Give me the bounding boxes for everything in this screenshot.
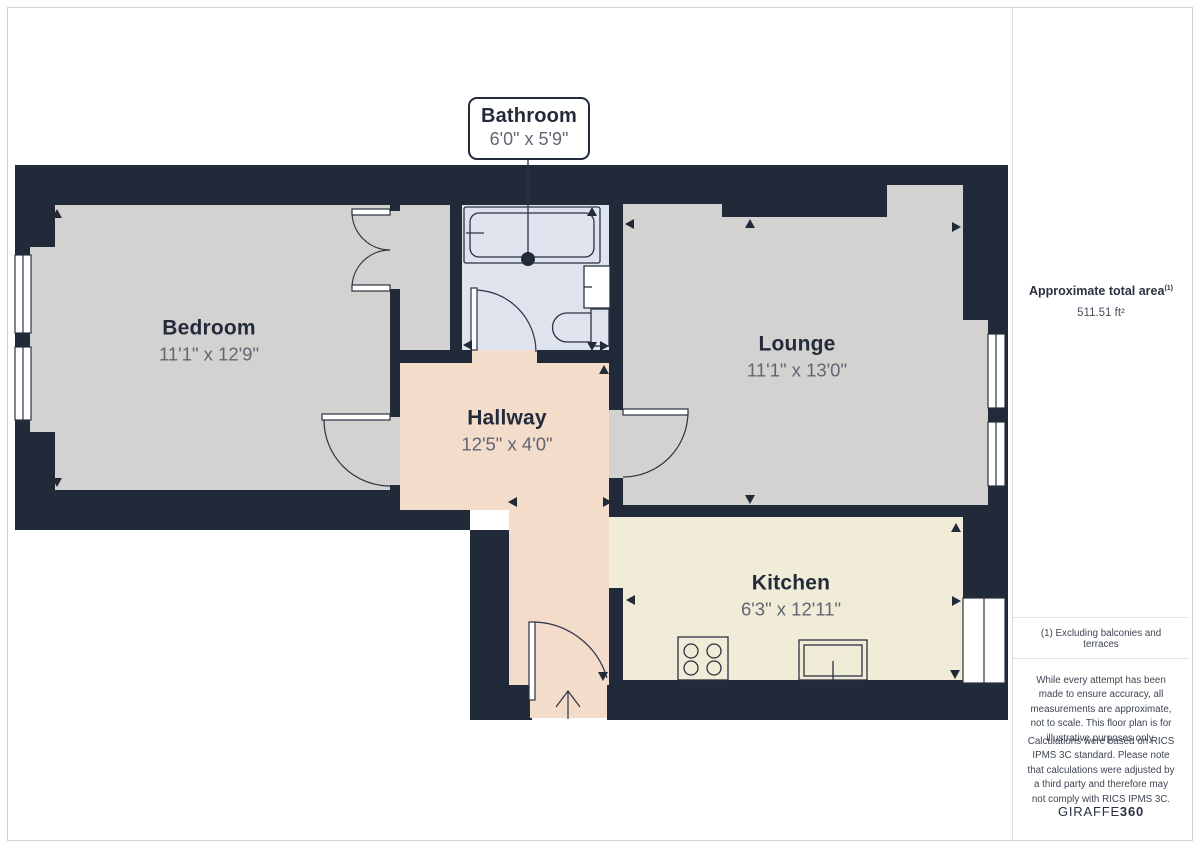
bathroom-dims: 6'0" x 5'9" xyxy=(470,129,588,150)
closet-door-leaf-top xyxy=(352,209,390,215)
closet-floor xyxy=(400,205,450,350)
kitchen-dims: 6'3" x 12'11" xyxy=(741,599,841,621)
area-footnote: (1) Excluding balconies and terraces xyxy=(1013,628,1189,650)
divider xyxy=(1013,658,1189,659)
footnote-marker: (1) xyxy=(1164,285,1173,292)
lounge-label: Lounge 11'1" x 13'0" xyxy=(747,333,847,382)
bedroom-door-leaf xyxy=(322,414,390,420)
bedroom-dims: 11'1" x 12'9" xyxy=(159,344,259,366)
disclaimer-rics: Calculations were based on RICS IPMS 3C … xyxy=(1013,735,1189,807)
bedroom-name: Bedroom xyxy=(159,317,259,341)
giraffe360-logo: GIRAFFE360 xyxy=(1013,804,1189,819)
hallway-name: Hallway xyxy=(461,407,552,431)
lounge-door-leaf xyxy=(623,409,688,415)
bathroom-name: Bathroom xyxy=(470,105,588,128)
bedroom-bay-floor xyxy=(30,247,55,432)
bedroom-label: Bedroom 11'1" x 12'9" xyxy=(159,317,259,366)
total-area-value: 511.51 ft² xyxy=(1013,307,1189,319)
lounge-name: Lounge xyxy=(747,333,847,357)
total-area-text: Approximate total area xyxy=(1029,284,1164,298)
kitchen-name: Kitchen xyxy=(741,572,841,596)
closet-door-leaf-bottom xyxy=(352,285,390,291)
brand-suffix: 360 xyxy=(1120,804,1144,819)
hallway-label: Hallway 12'5" x 4'0" xyxy=(461,407,552,456)
entrance-door-leaf xyxy=(529,622,535,700)
brand-name: GIRAFFE xyxy=(1058,804,1120,819)
divider xyxy=(1013,617,1189,618)
lounge-dims: 11'1" x 13'0" xyxy=(747,360,847,382)
lounge-nook-floor xyxy=(887,185,963,218)
lounge-bay-floor xyxy=(963,320,988,505)
kitchen-label: Kitchen 6'3" x 12'11" xyxy=(741,572,841,621)
bathroom-label-callout: Bathroom 6'0" x 5'9" xyxy=(468,97,590,160)
hallway-dims: 12'5" x 4'0" xyxy=(461,434,552,456)
total-area-label: Approximate total area(1) xyxy=(1013,284,1189,298)
info-sidebar: Approximate total area(1) 511.51 ft² (1)… xyxy=(1012,8,1189,840)
floorplan-page: Bathroom 6'0" x 5'9" Bedroom 11'1" x 12'… xyxy=(0,0,1200,848)
